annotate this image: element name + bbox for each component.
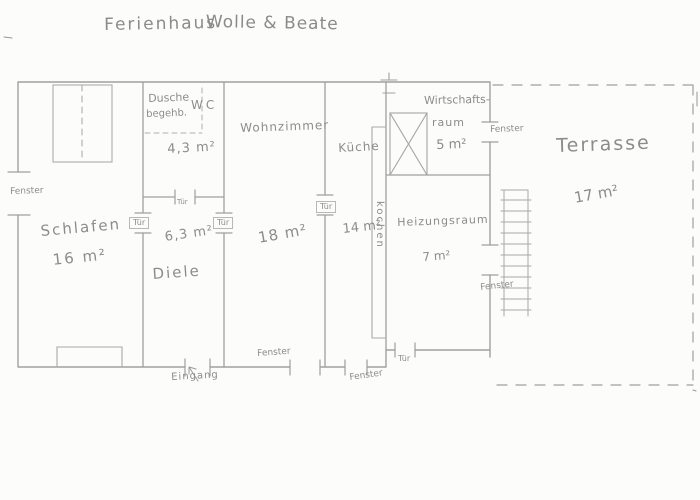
room-label-terrasse: Terrasse <box>556 134 651 156</box>
room-label-wirtschaftsraum-2: raum <box>432 117 465 128</box>
room-label-wohnzimmer: Wohnzimmer <box>240 119 329 134</box>
door-label-schlafen: Tür <box>129 217 149 229</box>
room-area-wirtschaftsraum: 5 m² <box>436 138 467 152</box>
room-label-dusche: Dusche <box>148 92 189 104</box>
page-title-owners: Wolle & Beate <box>206 14 339 33</box>
room-label-diele: Diele <box>152 264 201 282</box>
room-label-wc: WC <box>191 99 217 111</box>
utility-cross-box <box>390 113 427 175</box>
cross-box-diagonals <box>390 113 427 175</box>
floorplan-page: Ferienhaus Wolle & Beate Schlafen 16 m² … <box>0 0 700 500</box>
scan-artifacts <box>4 37 697 391</box>
room-label-dusche-begehbar: begehb. <box>146 109 187 120</box>
door-label-kueche: Tür <box>316 201 336 213</box>
page-title-ferienhaus: Ferienhaus <box>104 15 217 34</box>
window-label-left-wall: Fenster <box>10 187 44 197</box>
window-label-utility: Fenster <box>490 125 524 135</box>
room-label-kueche: Küche <box>338 140 380 154</box>
door-label-wc: Tür <box>177 199 188 206</box>
stairs <box>501 190 531 316</box>
room-area-bad: 4,3 m² <box>167 140 216 156</box>
kitchen-counter-label: kochen <box>374 201 384 249</box>
bench-outline <box>57 347 122 367</box>
chimney-symbol <box>381 73 397 93</box>
room-area-heizungsraum: 7 m² <box>422 249 451 263</box>
door-label-heizungsraum: Tür <box>398 355 410 363</box>
door-label-diele-wohnzimmer: Tür <box>213 217 233 229</box>
room-label-heizungsraum: Heizungsraum <box>397 214 489 228</box>
room-label-wirtschaftsraum-1: Wirtschafts- <box>424 94 490 106</box>
